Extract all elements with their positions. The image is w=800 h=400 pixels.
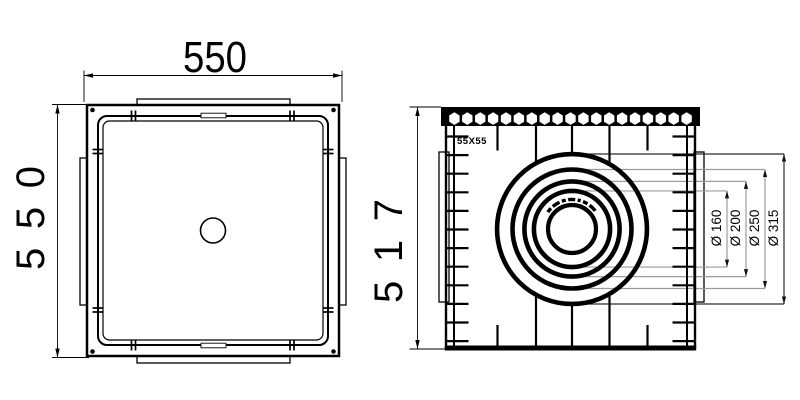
knockout-ring	[524, 181, 619, 276]
arrowhead	[84, 73, 93, 77]
pipe-dim-label: Ø 315	[766, 210, 781, 247]
knockout-ring	[497, 154, 647, 304]
top-slot	[201, 113, 226, 118]
arrowhead	[415, 340, 419, 349]
arrowhead	[744, 269, 748, 277]
corner-dot	[331, 108, 336, 113]
arrowhead	[725, 191, 729, 199]
arrowhead	[55, 349, 59, 358]
grate-mesh-label: 55X55	[457, 136, 487, 147]
corner-dot	[90, 108, 95, 113]
corner-dot	[90, 349, 95, 354]
knockout-ring	[513, 170, 632, 289]
pipe-dim-label: Ø 250	[747, 210, 762, 247]
bottom-slot	[201, 343, 226, 348]
top-view: 550 550	[9, 33, 346, 363]
corner-dot	[331, 349, 336, 354]
drawing-canvas: 550 550 Ø 160Ø 200Ø 250Ø 315	[0, 0, 800, 400]
grate-top-bar	[441, 107, 700, 112]
arrowhead	[55, 105, 59, 114]
pipe-knockout-rings	[497, 154, 647, 304]
knockout-ring	[534, 191, 610, 267]
dim-height: 550	[9, 105, 89, 358]
arrowhead	[782, 296, 786, 304]
body-ribs	[498, 126, 648, 346]
grate	[441, 107, 700, 126]
arrowhead	[763, 281, 767, 289]
arrowhead	[415, 107, 419, 116]
arrowhead	[725, 260, 729, 268]
dim-side-height: 517	[367, 107, 446, 349]
dim-width-label: 550	[183, 33, 247, 82]
pipe-dim-label: Ø 200	[728, 210, 743, 247]
wall-ribs	[446, 137, 695, 342]
arrowhead	[744, 181, 748, 189]
center-hole	[201, 218, 226, 243]
dim-side-height-label: 517	[367, 199, 411, 303]
socket-inner-circle	[548, 205, 596, 253]
pipe-dim-label: Ø 160	[709, 210, 724, 247]
technical-drawing-page: 550 550 Ø 160Ø 200Ø 250Ø 315	[0, 0, 800, 400]
side-view: Ø 160Ø 200Ø 250Ø 315	[367, 107, 786, 351]
dim-width: 550	[84, 33, 342, 102]
bottom-edge	[445, 346, 696, 351]
dim-height-label: 550	[9, 166, 53, 270]
arrowhead	[763, 170, 767, 178]
arrowhead	[782, 154, 786, 162]
arrowhead	[333, 73, 342, 77]
